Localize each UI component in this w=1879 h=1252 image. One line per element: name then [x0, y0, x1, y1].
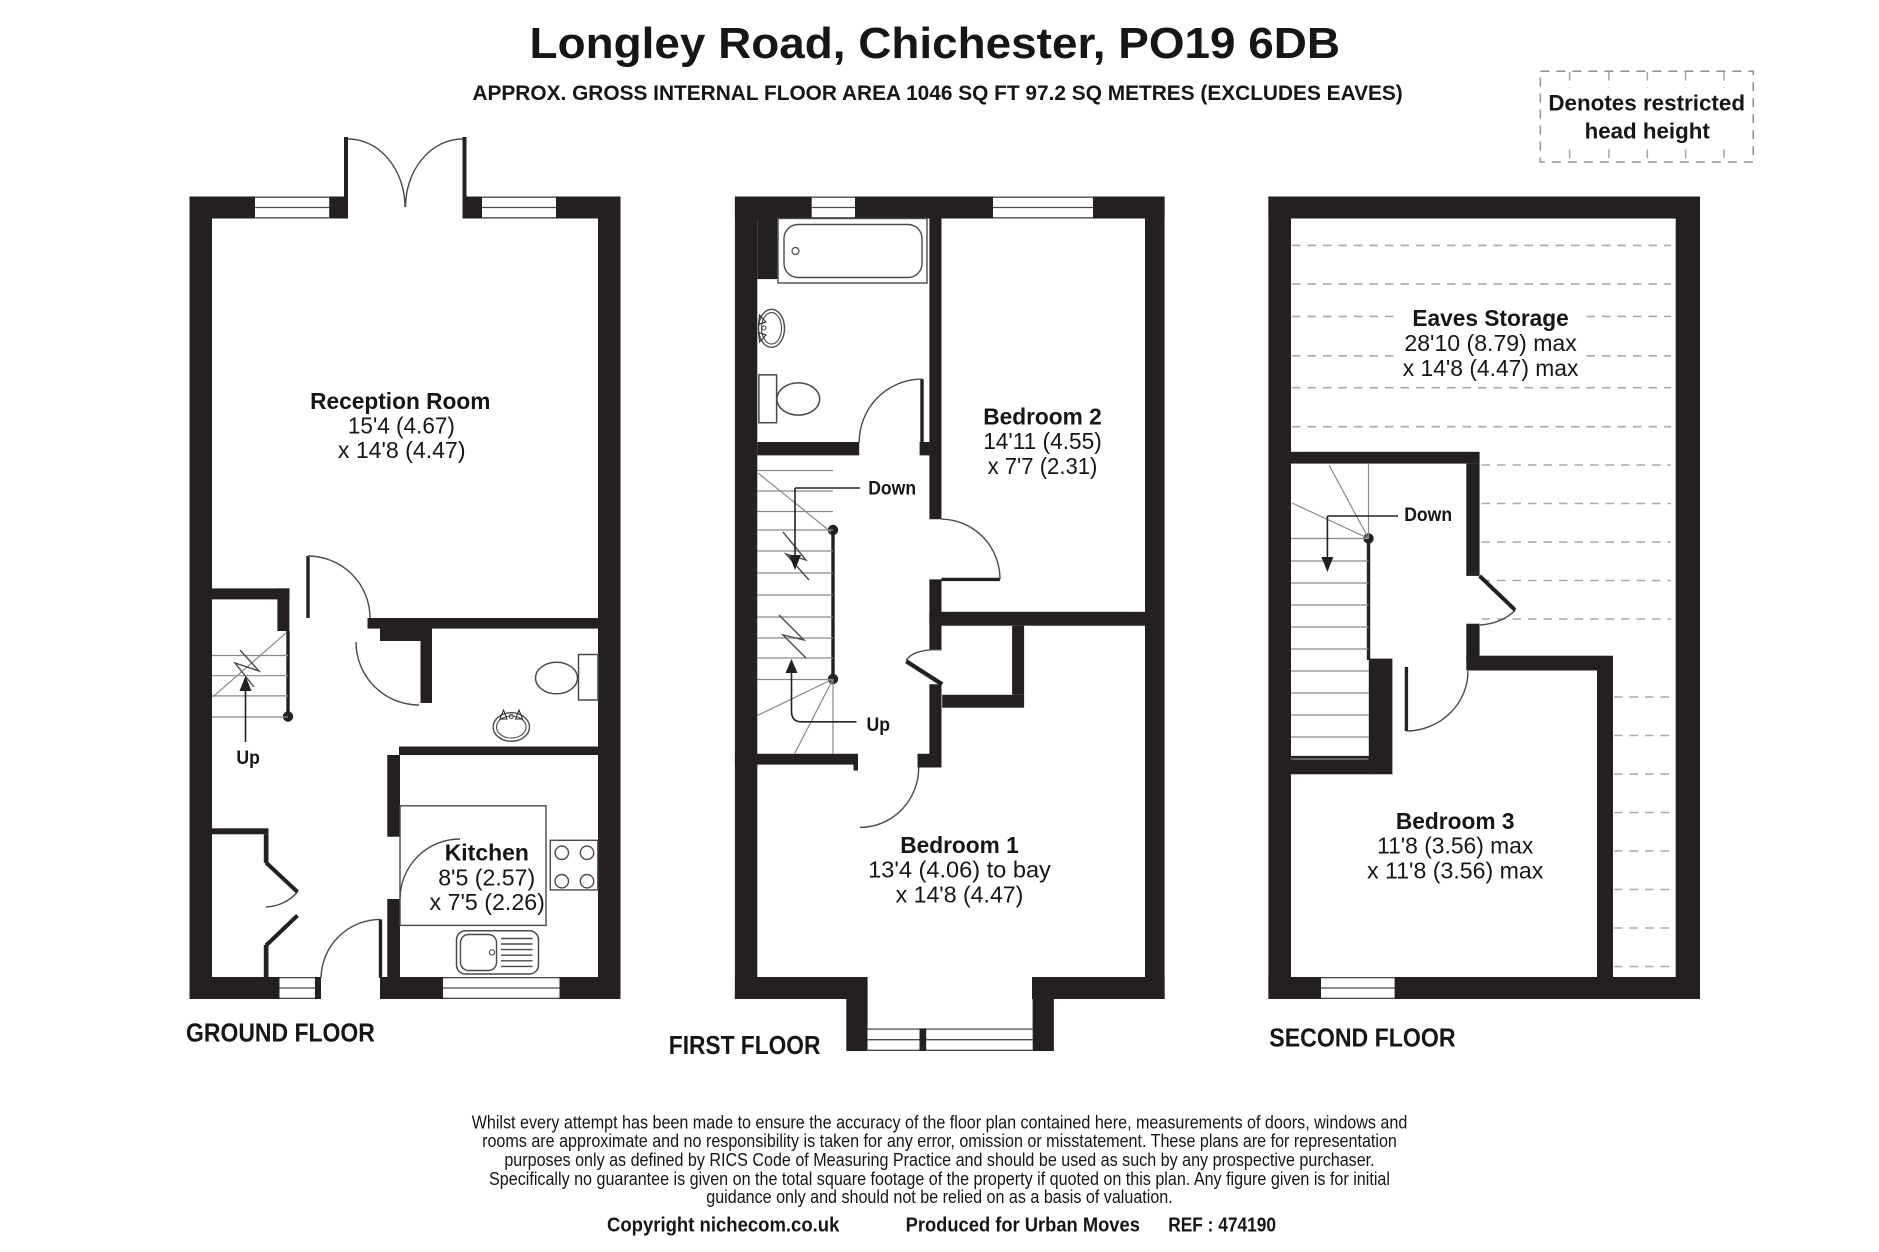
- svg-text:Eaves Storage: Eaves Storage: [1412, 305, 1568, 331]
- svg-text:x 11'8 (3.56) max: x 11'8 (3.56) max: [1367, 857, 1544, 883]
- svg-text:head height: head height: [1585, 118, 1711, 143]
- svg-text:Kitchen: Kitchen: [445, 840, 529, 866]
- svg-text:SECOND FLOOR: SECOND FLOOR: [1269, 1025, 1456, 1053]
- svg-text:Bedroom 1: Bedroom 1: [900, 832, 1019, 858]
- svg-text:Down: Down: [868, 477, 916, 499]
- svg-text:REF : 474190: REF : 474190: [1168, 1213, 1276, 1236]
- svg-text:Bedroom 3: Bedroom 3: [1396, 808, 1515, 834]
- svg-text:guidance only and should not b: guidance only and should not be relied o…: [706, 1186, 1173, 1207]
- svg-text:13'4 (4.06) to bay: 13'4 (4.06) to bay: [868, 857, 1051, 883]
- svg-text:Reception Room: Reception Room: [310, 388, 490, 414]
- svg-text:x 14'8 (4.47): x 14'8 (4.47): [896, 881, 1024, 907]
- svg-text:Longley Road, Chichester, PO19: Longley Road, Chichester, PO19 6DB: [530, 19, 1341, 68]
- svg-text:x 7'7 (2.31): x 7'7 (2.31): [988, 453, 1098, 479]
- svg-text:APPROX. GROSS INTERNAL FLOOR A: APPROX. GROSS INTERNAL FLOOR AREA 1046 S…: [472, 81, 1402, 105]
- svg-text:14'11 (4.55): 14'11 (4.55): [983, 428, 1102, 454]
- svg-text:8'5 (2.57): 8'5 (2.57): [438, 864, 535, 890]
- svg-text:Denotes restricted: Denotes restricted: [1548, 91, 1745, 116]
- svg-text:FIRST FLOOR: FIRST FLOOR: [669, 1032, 821, 1060]
- svg-text:Up: Up: [867, 714, 891, 736]
- svg-text:x 7'5 (2.26): x 7'5 (2.26): [430, 889, 545, 915]
- svg-text:Down: Down: [1404, 504, 1452, 526]
- svg-text:15'4 (4.67): 15'4 (4.67): [348, 413, 455, 439]
- svg-text:Up: Up: [236, 747, 260, 769]
- svg-text:purposes only as defined by RI: purposes only as defined by RICS Code of…: [504, 1149, 1374, 1170]
- svg-text:28'10 (8.79) max: 28'10 (8.79) max: [1404, 330, 1577, 356]
- svg-text:x 14'8 (4.47): x 14'8 (4.47): [338, 437, 466, 463]
- svg-text:Copyright nichecom.co.uk: Copyright nichecom.co.uk: [607, 1213, 840, 1236]
- svg-text:Produced for Urban Moves: Produced for Urban Moves: [906, 1213, 1140, 1236]
- svg-text:11'8 (3.56) max: 11'8 (3.56) max: [1377, 833, 1533, 859]
- svg-text:Bedroom 2: Bedroom 2: [983, 404, 1102, 430]
- svg-text:x 14'8 (4.47) max: x 14'8 (4.47) max: [1403, 355, 1579, 381]
- svg-text:GROUND FLOOR: GROUND FLOOR: [186, 1019, 375, 1047]
